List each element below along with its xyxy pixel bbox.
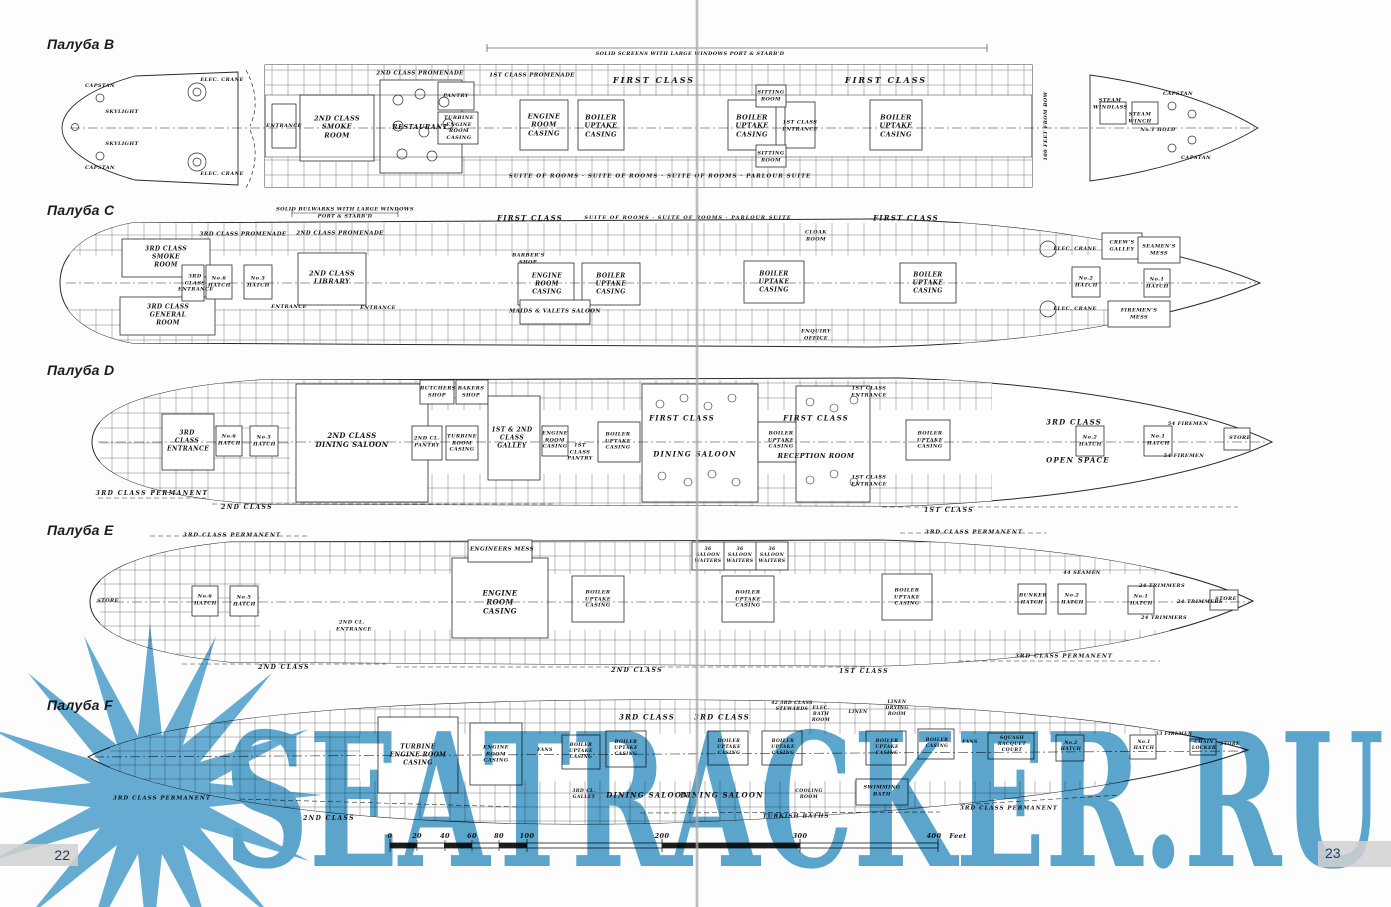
turbine-room-casing-label: TURBINE ROOM CASING [446,433,478,453]
third-permanent-dim: 3RD CLASS PERMANENT [925,529,1023,536]
pantry-label: PANTRY [443,93,469,100]
saloon-waiters-label: 36 SALOON WAITERS [725,547,755,565]
capstan-label: CAPSTAN [85,83,115,90]
no1-hatch-label: No.1 HATCH [1146,277,1168,290]
pantry-1st-label: 1ST CLASS PANTRY [566,442,594,462]
engine-casing-label: ENGINE ROOM CASING [477,744,515,764]
boiler-uptake-label: BOILER UPTAKE CASING [873,113,919,138]
elec-crane-label: ELEC. CRANE [200,171,243,178]
boiler-uptake-label: BOILER UPTAKE CASING [564,743,598,761]
promenade-3rd-label: 3RD CLASS PROMENADE [200,231,287,238]
boiler-uptake-label: BOILER UPTAKE CASING [905,271,951,294]
third-class-entrance-label: 3RD CLASS ENTRANCE [167,429,207,452]
store-label: STORE [97,598,119,605]
boiler-uptake-label: BOILER UPTAKE CASING [578,589,618,609]
sitting-room-label: SITTING ROOM [756,90,786,103]
third-permanent-dim: 3RD CLASS PERMANENT [1015,653,1113,660]
firemen-54-label: 54 FIREMEN [1168,421,1208,428]
galley-3rd-label: 3RD CL. GALLEY [570,789,598,801]
turbine-casing-label: TURBINE ENGINE ROOM CASING [439,115,479,141]
boiler-uptake-label: BOILER UPTAKE CASING [712,739,746,757]
scale-tick-300: 300 [793,832,808,840]
no1-hatch-label: No.1 HATCH [1147,434,1169,447]
third-permanent-dim: 3RD CLASS PERMANENT [183,532,281,539]
feet-from-bow-label: 100 FEET FROM BOW [1043,91,1050,160]
first-class-label: FIRST CLASS [873,213,939,222]
seamen-44-label: 44 SEAMEN [1063,570,1101,577]
cooling-room-label: COOLING ROOM [794,789,824,801]
scale-tick-0: 0 [388,832,393,840]
bunker-hatch-label: BUNKER HATCH [1019,593,1045,606]
first-class-dim: 1ST CLASS [839,668,889,676]
library-label: 2ND CLASS LIBRARY [306,270,358,287]
chain-locker-label: CHAIN LOCKER [1191,740,1217,752]
crews-galley-label: CREW'S GALLEY [1106,240,1138,253]
page-fold-line [695,0,699,907]
no2-hatch-label: No.2 HATCH [1075,276,1097,289]
no2-hatch-label: No.2 HATCH [1061,593,1083,606]
boiler-uptake-label: BOILER UPTAKE CASING [912,430,948,450]
store-label: STORE [1215,596,1237,603]
third-class-label: 3RD CLASS [619,712,675,721]
solid-bulwarks-note: SOLID BULWARKS WITH LARGE WINDOWS PORT &… [275,207,415,220]
second-class-dim: 2ND CLASS [258,664,310,672]
scale-bar [390,839,938,852]
pantry-2nd-label: 2ND CL. PANTRY [413,436,441,449]
elec-crane-label: ELEC. CRANE [200,77,243,84]
solid-screens-note: SOLID SCREENS WITH LARGE WINDOWS PORT & … [596,51,785,58]
skylight-label: SKYLIGHT [105,109,138,116]
promenade-2nd-label: 2ND CLASS PROMENADE [376,70,463,77]
butchers-shop-label: BUTCHERS SHOP [420,386,454,399]
entrance-label: ENTRANCE [271,304,307,311]
smoke-room-label: 2ND CLASS SMOKE ROOM [314,114,360,139]
no1-hatch-label: No.1 HATCH [1133,740,1155,752]
right-page-number: 23 [1325,841,1341,865]
maids-valets-saloon-label: MAIDS & VALETS SALOON [509,308,601,315]
no5-hatch-label: No.5 HATCH [253,435,275,448]
no5-hatch-label: No.5 HATCH [247,276,269,289]
dining-saloon-label: DINING SALOON [680,790,763,799]
scale-tick-200: 200 [655,832,670,840]
no6-hatch-label: No.6 HATCH [218,434,240,447]
first-class-dim: 1ST CLASS [924,507,974,515]
deck-c-title: Палуба C [47,202,114,218]
swimming-bath-label: SWIMMING BATH [863,785,901,798]
scale-tick-40: 40 [440,832,450,840]
engine-casing-label: ENGINE ROOM CASING [526,272,568,295]
elec-crane-label: ELEC. CRANE [1053,246,1096,253]
deck-d-title: Палуба D [47,362,114,378]
elec-crane-label: ELEC. CRANE [1053,306,1096,313]
trimmers-24-label: 24 TRIMMERS [1139,583,1185,590]
turbine-engine-casing-label: TURBINE ENGINE ROOM CASING [389,743,447,766]
firemens-mess-label: FIREMEN'S MESS [1120,308,1158,321]
saloon-waiters-label: 36 SALOON WAITERS [757,547,787,565]
store-label: STORE [1229,435,1251,442]
scale-tick-400: 400 [927,832,942,840]
no5-hatch-label: No.5 HATCH [233,595,255,608]
bakers-shop-label: BAKERS SHOP [457,386,485,399]
sitting-room-label: SITTING ROOM [756,151,786,164]
barber-shop-label: BARBER'S SHOP [512,253,544,266]
first-class-label: FIRST CLASS [783,413,849,422]
boiler-uptake-label: BOILER UPTAKE CASING [578,113,624,138]
suites-note: SUITE OF ROOMS · SUITE OF ROOMS · PARLOU… [584,215,791,222]
seamens-mess-label: SEAMEN'S MESS [1142,244,1176,257]
scale-tick-60: 60 [467,832,477,840]
third-class-label: 3RD CLASS [1046,417,1102,426]
engine-casing-label: ENGINE ROOM CASING [477,588,523,615]
suites-note: SUITE OF ROOMS · SUITE OF ROOMS · SUITE … [509,173,811,180]
deck-e-title: Палуба E [47,522,114,538]
scale-tick-80: 80 [494,832,504,840]
store-label: STORE [1220,742,1240,748]
smoke-room-3rd-label: 3RD CLASS SMOKE ROOM [142,245,190,268]
deck-b-title: Палуба B [47,36,114,52]
boiler-uptake-label: BOILER UPTAKE CASING [588,272,634,295]
steam-windlass-label: STEAM WINDLASS [1093,98,1127,111]
first-class-label: FIRST CLASS [845,75,927,85]
no6-hatch-label: No.6 HATCH [194,594,216,607]
scale-tick-20: 20 [412,832,422,840]
galley-label: 1ST & 2ND CLASS GALLEY [491,426,533,449]
second-class-dim: 2ND CLASS [303,815,355,823]
firemen-53-label: 53 FIREMEN [1156,732,1193,738]
right-page-number-band: 23 [1318,841,1391,867]
left-page-number: 22 [54,844,70,866]
promenade-1st-label: 1ST CLASS PROMENADE [489,72,575,79]
scale-unit-label: Feet [949,832,966,840]
third-class-entrance-label: 3RD CLASS ENTRANCE [178,273,212,293]
scale-tick-100: 100 [520,832,535,840]
no2-hatch-label: No.2 HATCH [1060,741,1082,753]
turkish-baths-dim: TURKISH BATHS [763,813,830,820]
left-page-number-band: 22 [0,844,78,866]
drying-room-label: LINEN DRYING ROOM [878,700,916,718]
first-class-entrance-label: 1ST CLASS ENTRANCE [782,120,818,133]
open-space-label: OPEN SPACE [1046,455,1110,464]
first-class-label: FIRST CLASS [497,213,563,222]
boiler-uptake-label: BOILER UPTAKE CASING [870,739,904,757]
firemen-54-label: 54 FIREMEN [1164,453,1204,460]
skylight-label: SKYLIGHT [105,141,138,148]
boiler-uptake-label: BOILER UPTAKE CASING [766,739,800,757]
fans-label: FANS [537,748,552,754]
no1-hatch-label: No.1 HATCH [1130,594,1152,607]
boiler-uptake-label: BOILER UPTAKE CASING [751,270,797,293]
boiler-uptake-label: BOILER UPTAKE CASING [887,587,927,607]
fans-label: FANS [962,740,977,746]
steam-winch-label: STEAM WINCH [1125,112,1155,125]
boiler-uptake-label: BOILER UPTAKE CASING [600,431,636,451]
third-permanent-dim: 3RD CLASS PERMANENT [96,490,209,498]
boiler-uptake-label: BOILER UPTAKE CASING [728,589,768,609]
no1-hold-label: No.1 HOLD [1140,127,1175,134]
entrance-label: ENTRANCE [266,123,302,130]
dining-saloon-2nd-label: 2ND CLASS DINING SALOON [312,431,392,449]
general-room-label: 3RD CLASS GENERAL ROOM [143,303,193,326]
enquiry-office-label: ENQUIRY OFFICE [799,329,833,342]
no6-hatch-label: No.6 HATCH [208,276,230,289]
elec-bath-label: ELEC. BATH ROOM [808,706,834,724]
dining-saloon-label: DINING SALOON [606,790,689,799]
second-class-entrance-label: 2ND CL. ENTRANCE [336,620,368,633]
engineers-mess-label: ENGINEERS MESS [470,546,534,553]
engine-casing-label: ENGINE ROOM CASING [523,112,565,137]
third-permanent-dim: 3RD CLASS PERMANENT [960,805,1058,812]
capstan-label: CAPSTAN [1181,155,1211,162]
trimmers-24-label: 24 TRIMMERS [1141,615,1187,622]
boiler-uptake-label: BOILER UPTAKE CASING [609,740,643,758]
first-class-entrance-label: 1ST CLASS ENTRANCE [851,386,887,399]
capstan-label: CAPSTAN [85,165,115,172]
third-permanent-dim: 3RD CLASS PERMANENT [113,795,211,802]
book-spread-deck-plans: Палуба B [0,0,1391,907]
boiler-uptake-label: BOILER UPTAKE CASING [763,430,799,450]
second-class-dim: 2ND CLASS [611,667,663,675]
squash-court-label: SQUASH RACQUET COURT [991,736,1033,754]
deck-f-title: Палуба F [47,697,113,713]
second-class-dim: 2ND CLASS [221,504,273,512]
third-class-label: 3RD CLASS [694,712,750,721]
boiler-casing-label: BOILER CASING [923,738,951,750]
no2-hatch-label: No.2 HATCH [1079,435,1101,448]
first-class-label: FIRST CLASS [649,413,715,422]
linen-label: LINEN [849,710,868,716]
first-class-entrance-label: 1ST CLASS ENTRANCE [851,475,887,488]
cloak-room-label: CLOAK ROOM [802,230,830,243]
first-class-label: FIRST CLASS [613,75,695,85]
capstan-label: CAPSTAN [1163,91,1193,98]
entrance-label: ENTRANCE [360,305,396,312]
boiler-uptake-label: BOILER UPTAKE CASING [729,113,775,138]
reception-room-label: RECEPTION ROOM [778,452,855,460]
promenade-2nd-label: 2ND CLASS PROMENADE [296,230,383,237]
